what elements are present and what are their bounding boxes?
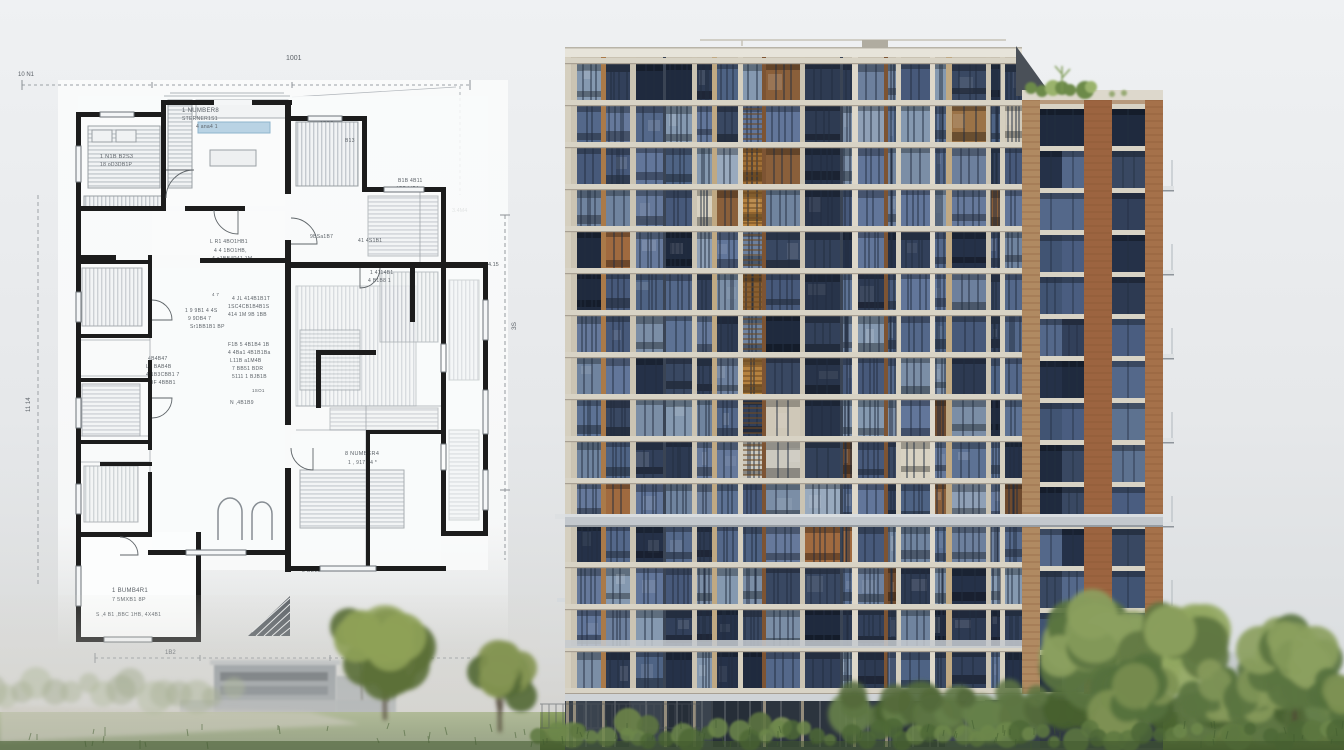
svg-text:414 1M 9B 1BB: 414 1M 9B 1BB	[228, 312, 267, 318]
svg-text:4 4Ba1 4B1B1Ba: 4 4Ba1 4B1B1Ba	[228, 350, 271, 356]
svg-text:11 14: 11 14	[26, 397, 32, 412]
svg-text:9BSa1B7: 9BSa1B7	[310, 234, 333, 240]
svg-text:4 ana4 1: 4 ana4 1	[196, 124, 218, 130]
svg-text:B13: B13	[345, 138, 355, 144]
svg-text:Sr1BB1B1 BP: Sr1BB1B1 BP	[190, 324, 225, 330]
svg-text:7 BB51 BDR: 7 BB51 BDR	[232, 366, 263, 372]
svg-text:L11B a1M4B: L11B a1M4B	[230, 358, 262, 364]
svg-text:4 7: 4 7	[212, 292, 219, 297]
svg-text:3S: 3S	[511, 321, 518, 330]
svg-text:STERNER1S1: STERNER1S1	[182, 116, 218, 122]
svg-text:10 N1: 10 N1	[18, 72, 35, 78]
svg-text:1 4114B1: 1 4114B1	[370, 270, 393, 276]
svg-text:41 4S1B1: 41 4S1B1	[358, 238, 382, 244]
svg-text:4 B1B8 1: 4 B1B8 1	[368, 278, 391, 284]
svg-text:8 NUMBER4: 8 NUMBER4	[345, 451, 379, 457]
svg-text:1SO1: 1SO1	[252, 388, 265, 393]
svg-text:1001: 1001	[286, 55, 302, 62]
svg-text:4.15: 4.15	[488, 262, 499, 268]
svg-text:L R1 4BO1HB1: L R1 4BO1HB1	[210, 239, 248, 245]
svg-text:B1B 4B11: B1B 4B11	[398, 178, 423, 184]
svg-text:4 4 1BO1HB,: 4 4 1BO1HB,	[214, 248, 247, 254]
svg-text:9 9DB4 7: 9 9DB4 7	[188, 316, 211, 322]
svg-text:1 , 9171 4 *: 1 , 9171 4 *	[348, 460, 377, 466]
svg-text:5111 1 BJB1B: 5111 1 BJB1B	[232, 374, 267, 380]
svg-text:BF 4BBB1: BF 4BBB1	[150, 380, 176, 386]
svg-text:N ,4B1B9: N ,4B1B9	[230, 400, 254, 406]
svg-text:F1B 5 4B1B4 1B: F1B 5 4B1B4 1B	[228, 342, 270, 348]
svg-text:1 NUMBER8: 1 NUMBER8	[182, 108, 219, 114]
svg-text:1SC4CB1B4B1S: 1SC4CB1B4B1S	[228, 304, 270, 310]
svg-text:4 JL 414B1B1T: 4 JL 414B1B1T	[232, 296, 270, 302]
svg-text:1 BUMB4R1: 1 BUMB4R1	[112, 588, 148, 594]
svg-text:1 9 9B1 4 4S: 1 9 9B1 4 4S	[185, 308, 218, 314]
svg-text:1 N1B B2S3: 1 N1B B2S3	[100, 154, 133, 160]
svg-text:18 oD3DB1P: 18 oD3DB1P	[100, 162, 133, 168]
